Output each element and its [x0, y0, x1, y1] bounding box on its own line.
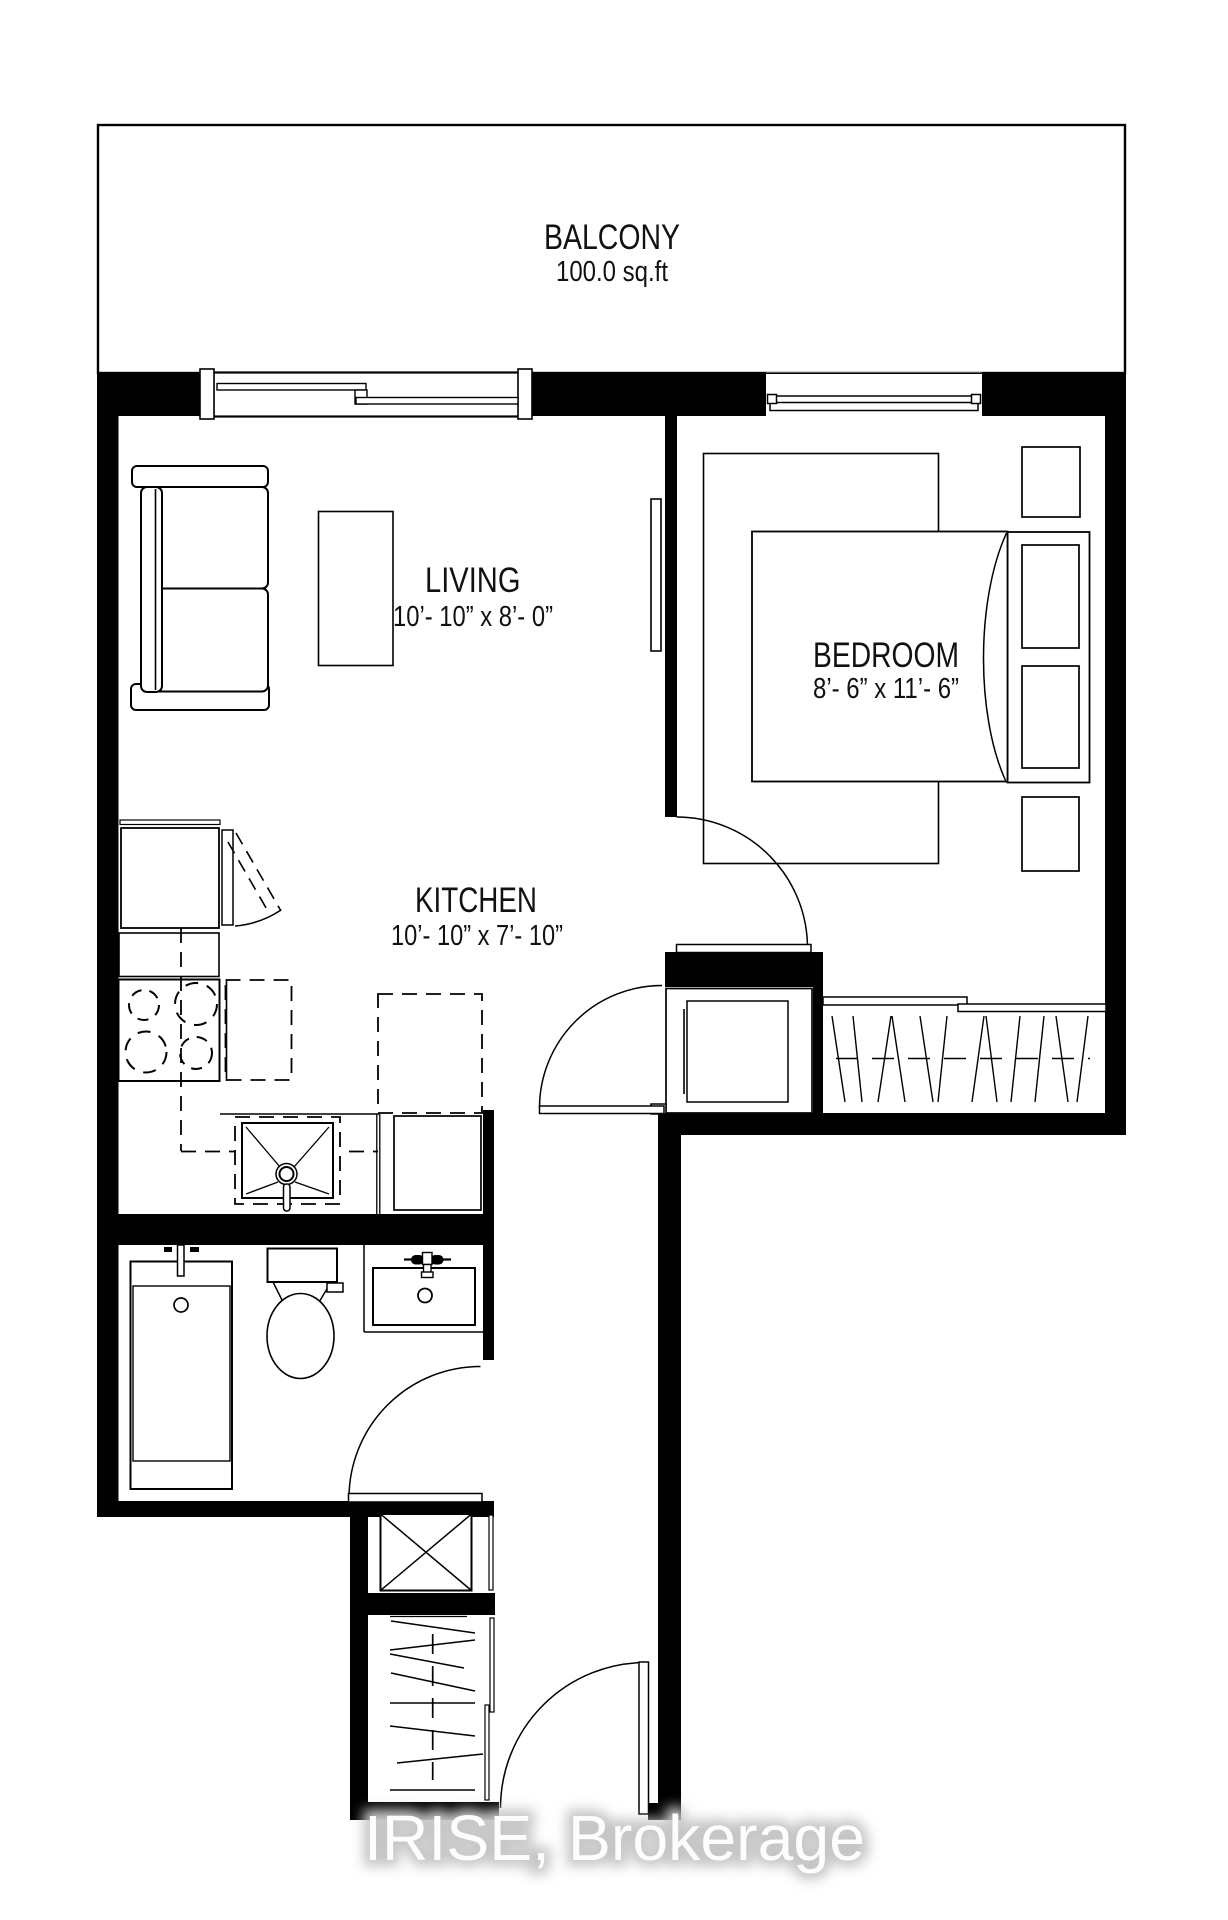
svg-text:100.0 sq.ft: 100.0 sq.ft: [556, 256, 668, 288]
svg-text:LIVING: LIVING: [425, 561, 521, 600]
svg-text:BEDROOM: BEDROOM: [813, 636, 959, 675]
svg-text:BALCONY: BALCONY: [544, 218, 680, 257]
svg-text:10’- 10” x 7’- 10”: 10’- 10” x 7’- 10”: [391, 920, 563, 952]
svg-text:IRISE, Brokerage: IRISE, Brokerage: [364, 1802, 865, 1874]
svg-text:KITCHEN: KITCHEN: [415, 881, 537, 920]
svg-text:8’- 6” x 11’- 6”: 8’- 6” x 11’- 6”: [813, 673, 959, 705]
svg-text:10’- 10” x 8’- 0”: 10’- 10” x 8’- 0”: [393, 601, 553, 633]
